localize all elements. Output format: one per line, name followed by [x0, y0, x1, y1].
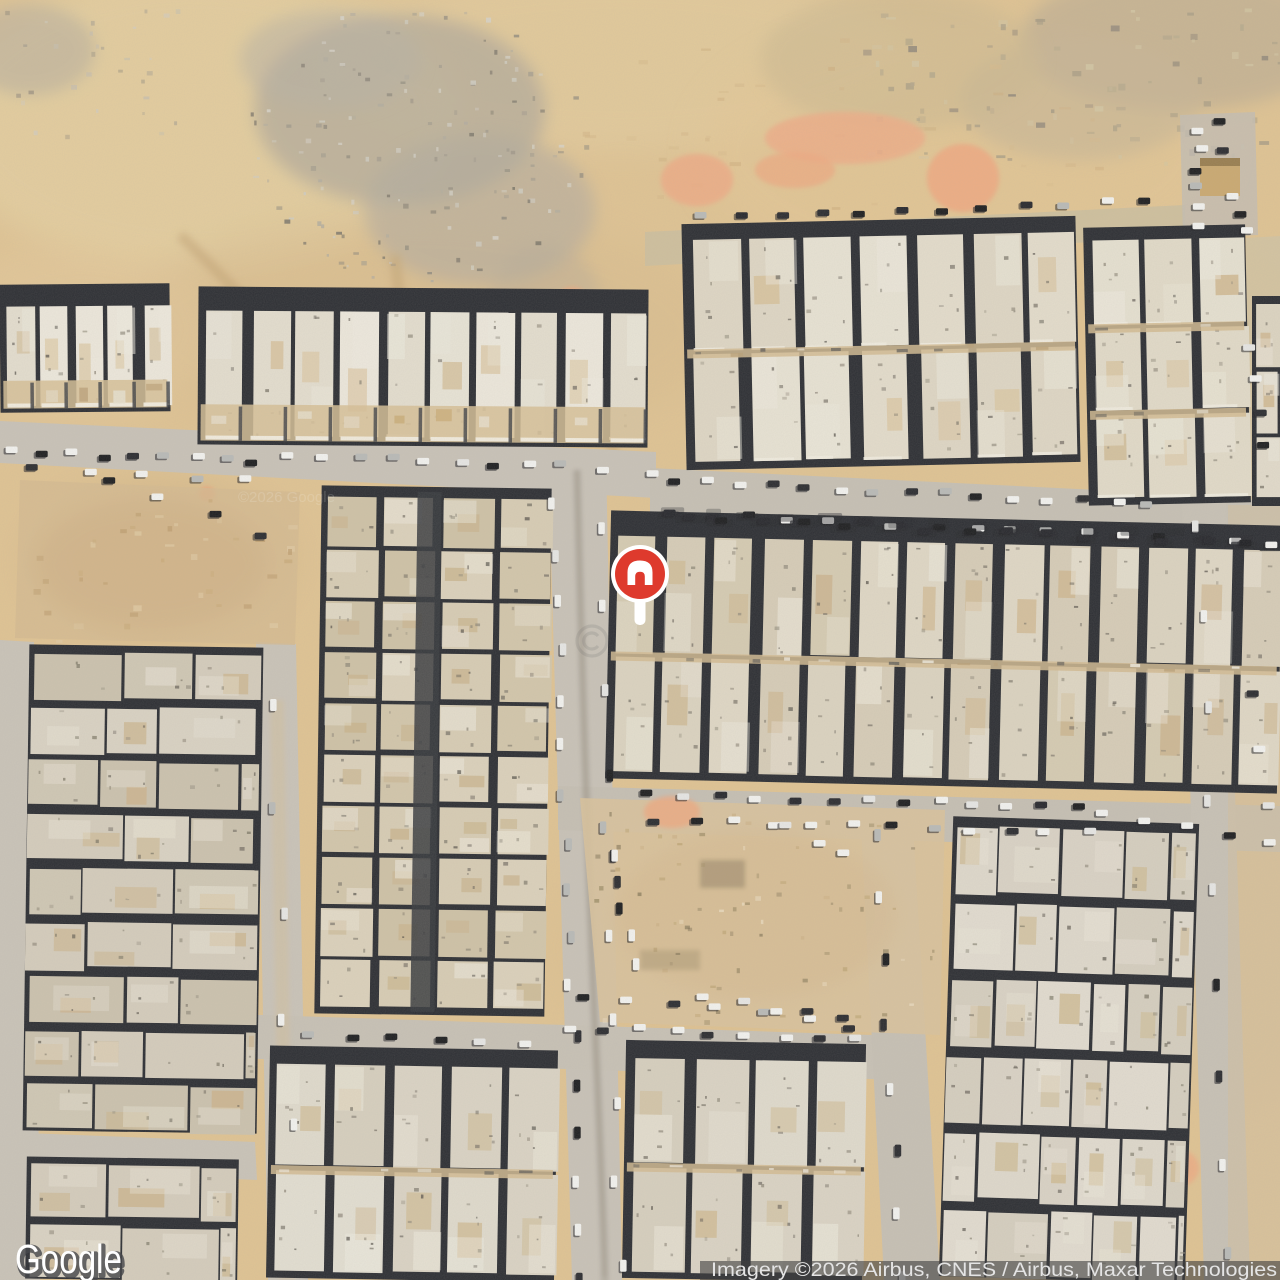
svg-text:Imagery ©2026 Airbus, CNES / A: Imagery ©2026 Airbus, CNES / Airbus, Max… [711, 1259, 1277, 1280]
svg-text:Google: Google [15, 1236, 122, 1280]
